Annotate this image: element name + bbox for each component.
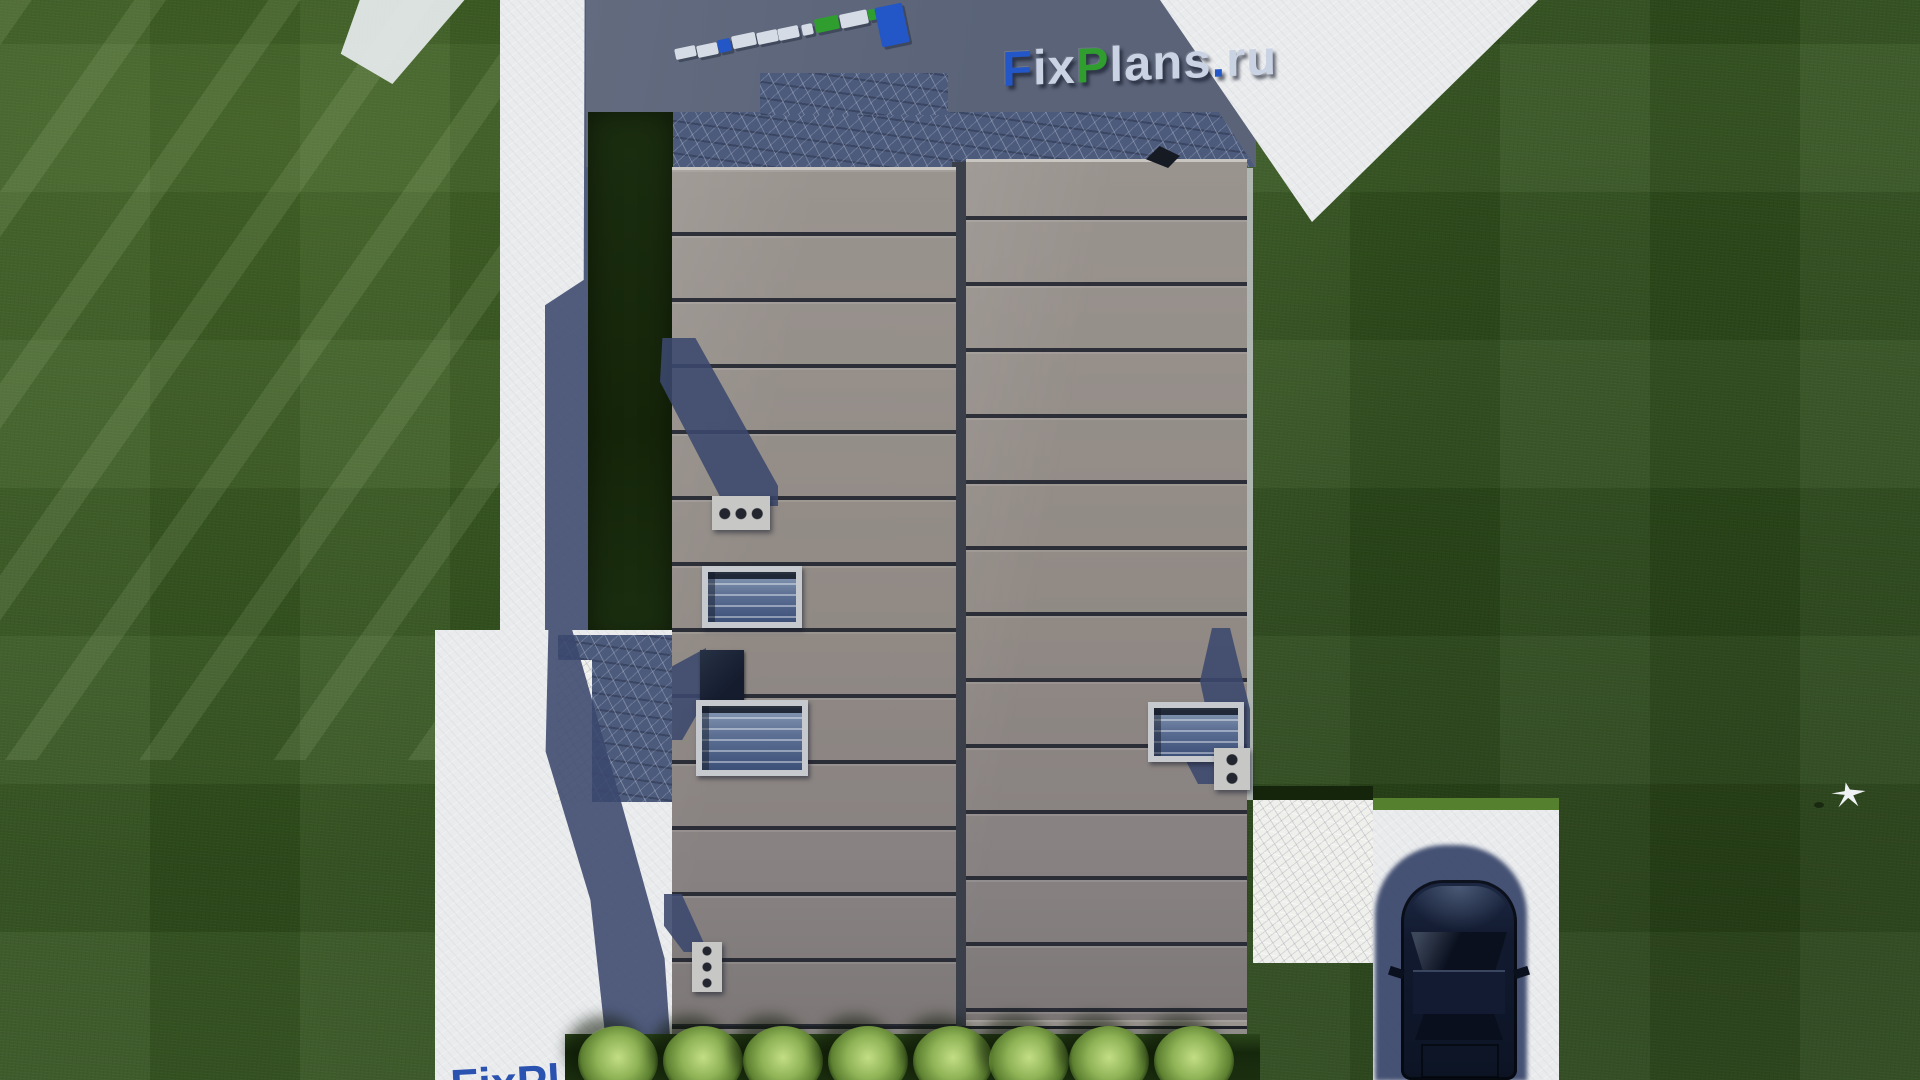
chimney-vent-3holes	[712, 496, 770, 530]
car-hood-glint	[1407, 886, 1511, 930]
site-plan-render: FixPlans.ru FixPl	[0, 0, 1920, 1080]
ground-letter-block	[696, 42, 719, 58]
vent-3holes-vertical	[692, 942, 722, 992]
watermark-text: FixPlans.ru	[1002, 30, 1277, 98]
car-trunk-outline	[1421, 1044, 1499, 1078]
roof-hatch-dark	[700, 650, 744, 704]
bird-shadow	[1814, 802, 1824, 808]
watermark-letter: n	[1152, 35, 1183, 90]
watermark-letter: .	[1211, 33, 1226, 88]
watermark-letter: l	[1109, 38, 1124, 93]
car-roof-panel	[1413, 970, 1505, 1014]
car-top-view	[1401, 880, 1517, 1080]
ground-letter-block	[874, 3, 910, 48]
roof-right-section	[966, 159, 1247, 1032]
watermark-letter: i	[1033, 41, 1048, 96]
skylight-upper	[702, 566, 802, 628]
ground-letter-block	[756, 29, 779, 45]
ground-letter-block	[777, 25, 800, 41]
car-windshield	[1411, 932, 1507, 970]
watermark-letter: x	[1047, 40, 1076, 95]
watermark-partial: FixPl	[450, 1050, 610, 1080]
hedge-strip	[588, 112, 673, 642]
ground-letter-block	[839, 9, 869, 29]
watermark-letter: u	[1246, 31, 1277, 86]
stone-paving-patch	[760, 73, 948, 115]
planting-bed	[565, 1034, 1260, 1080]
skylight-lower	[696, 700, 808, 776]
ground-letter-block	[801, 23, 814, 36]
ground-letter-block	[674, 45, 697, 60]
watermark-partial-text: FixPl	[450, 1053, 562, 1080]
chimney-vent-2holes	[1214, 748, 1250, 790]
car-rear-glass	[1415, 1014, 1503, 1040]
ground-letter-block	[731, 32, 757, 50]
ground-letter-block	[814, 15, 840, 34]
ground-letters	[670, 0, 920, 66]
ground-letter-block	[717, 38, 732, 53]
stone-terrace-right	[1253, 800, 1373, 963]
watermark-letter: r	[1226, 32, 1247, 87]
watermark-letter: s	[1183, 34, 1212, 89]
watermark-letter: a	[1124, 36, 1153, 91]
watermark-letter: P	[1076, 38, 1110, 94]
watermark-letter: F	[1002, 42, 1033, 97]
